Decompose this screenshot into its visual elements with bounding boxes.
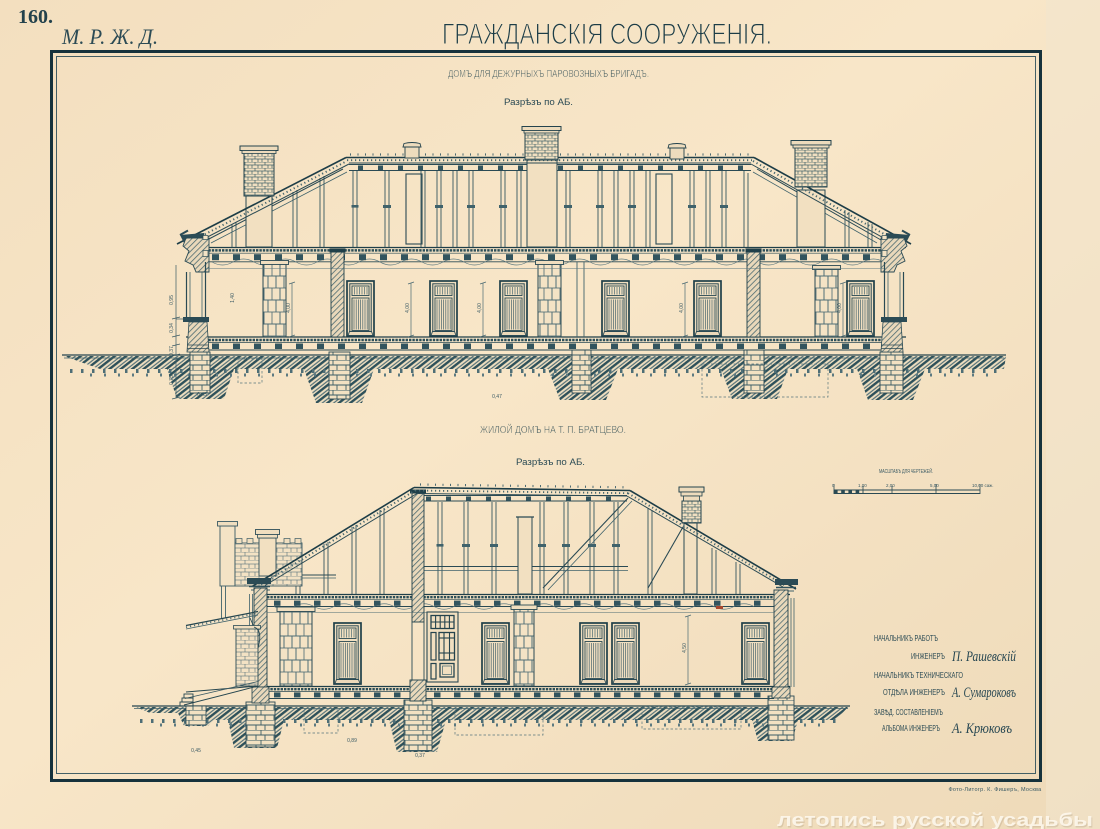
svg-text:0,45: 0,45 <box>191 748 201 754</box>
svg-text:ДОМЪ ДЛЯ ДЕЖУРНЫХЪ ПАРОВОЗНЫХЪ: ДОМЪ ДЛЯ ДЕЖУРНЫХЪ ПАРОВОЗНЫХЪ БРИГАДЪ. <box>448 69 649 80</box>
svg-text:НАЧАЛЬНИКЪ ТЕХНИЧЕСКАГО: НАЧАЛЬНИКЪ ТЕХНИЧЕСКАГО <box>874 671 963 680</box>
svg-text:4,00: 4,00 <box>286 303 292 313</box>
svg-text:2,00: 2,00 <box>886 483 895 488</box>
svg-text:Фото-Литогр. К. Фишеръ, Москва: Фото-Литогр. К. Фишеръ, Москва <box>948 787 1042 793</box>
svg-text:ЖИЛОЙ ДОМЪ НА Т. П. БРАТЦЕВО.: ЖИЛОЙ ДОМЪ НА Т. П. БРАТЦЕВО. <box>480 423 626 436</box>
svg-text:А. Сумароковъ: А. Сумароковъ <box>951 685 1016 701</box>
svg-text:М. Р. Ж. Д.: М. Р. Ж. Д. <box>61 24 158 49</box>
svg-text:0,45: 0,45 <box>197 392 207 398</box>
svg-text:Разрѣзъ по АБ.: Разрѣзъ по АБ. <box>504 97 573 107</box>
svg-text:П. Рашевскій: П. Рашевскій <box>951 649 1016 665</box>
svg-text:5,00: 5,00 <box>930 483 939 488</box>
svg-text:ОТДѢЛА ИНЖЕНЕРЪ: ОТДѢЛА ИНЖЕНЕРЪ <box>883 688 945 697</box>
svg-text:1,00: 1,00 <box>858 483 867 488</box>
svg-text:0,47: 0,47 <box>492 394 502 400</box>
svg-text:0,37: 0,37 <box>415 753 425 759</box>
svg-text:Разрѣзъ по АБ.: Разрѣзъ по АБ. <box>516 457 585 467</box>
svg-text:10,00 саж.: 10,00 саж. <box>972 483 994 488</box>
svg-text:А. Крюковъ: А. Крюковъ <box>951 721 1012 737</box>
svg-text:летопись русской усадьбы: летопись русской усадьбы <box>777 809 1093 829</box>
svg-text:160.: 160. <box>18 6 53 28</box>
svg-text:АЛЬБОМА ИНЖЕНЕРЪ: АЛЬБОМА ИНЖЕНЕРЪ <box>882 724 940 733</box>
svg-text:1,40: 1,40 <box>230 293 236 303</box>
svg-text:0,34: 0,34 <box>169 323 175 333</box>
svg-text:4,00: 4,00 <box>679 303 685 313</box>
svg-text:4,00: 4,00 <box>837 303 843 313</box>
svg-text:0,89: 0,89 <box>347 738 357 744</box>
svg-text:ИНЖЕНЕРЪ: ИНЖЕНЕРЪ <box>911 652 945 661</box>
svg-text:0,75: 0,75 <box>169 375 175 385</box>
svg-text:0,95: 0,95 <box>169 295 175 305</box>
svg-text:ГРАЖДАНСКIЯ СООРУЖЕНIЯ.: ГРАЖДАНСКIЯ СООРУЖЕНIЯ. <box>442 18 772 51</box>
svg-text:4,00: 4,00 <box>477 303 483 313</box>
svg-text:ЗАВѢД. СОСТАВЛЕНІЕМЪ: ЗАВѢД. СОСТАВЛЕНІЕМЪ <box>874 708 943 717</box>
svg-text:НАЧАЛЬНИКЪ РАБОТЪ: НАЧАЛЬНИКЪ РАБОТЪ <box>874 634 938 643</box>
svg-text:0,37: 0,37 <box>169 346 175 356</box>
svg-text:4,50: 4,50 <box>682 643 688 653</box>
svg-text:4,00: 4,00 <box>405 303 411 313</box>
svg-text:МАСШТАБЪ ДЛЯ ЧЕРТЕЖЕЙ.: МАСШТАБЪ ДЛЯ ЧЕРТЕЖЕЙ. <box>879 467 933 475</box>
